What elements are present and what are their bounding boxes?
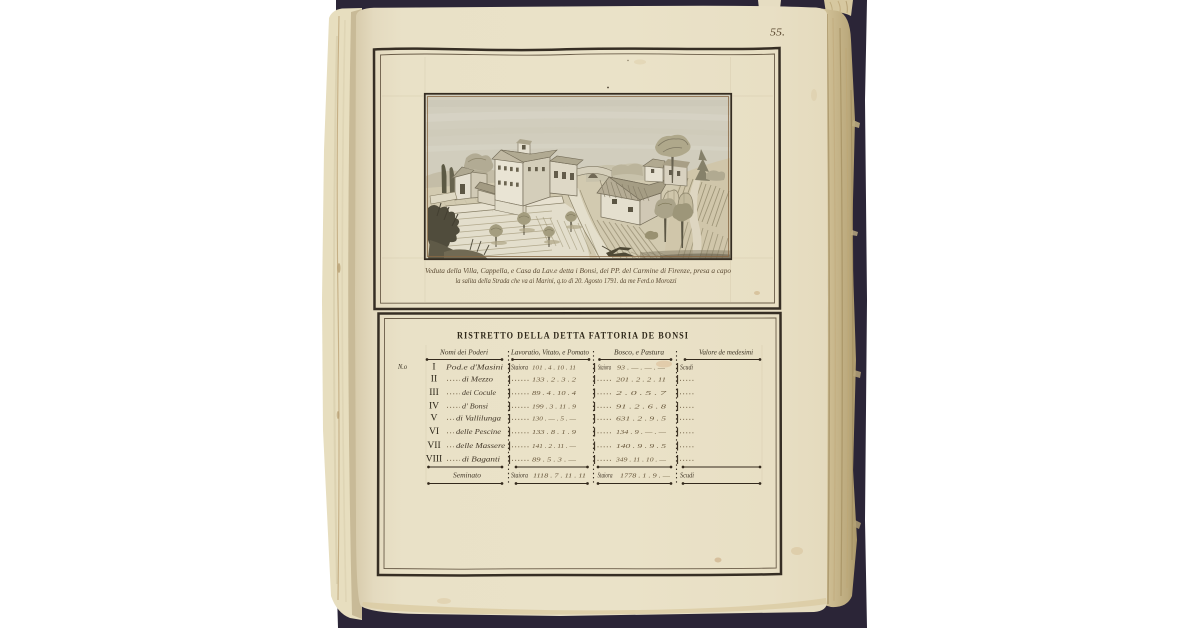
svg-text:VIII: VIII — [426, 454, 443, 465]
svg-text:141 . 2 . 11 . —: 141 . 2 . 11 . — — [532, 443, 577, 450]
svg-text:II: II — [431, 374, 437, 385]
svg-text:Nomi dei Poderi: Nomi dei Poderi — [439, 349, 488, 357]
svg-text:VI: VI — [429, 426, 439, 437]
svg-text:dei Cocule: dei Cocule — [462, 389, 497, 397]
svg-text:I: I — [432, 362, 435, 373]
svg-text:55.: 55. — [770, 27, 785, 39]
svg-text:Staiora: Staiora — [511, 364, 528, 372]
svg-text:delle Pescine: delle Pescine — [456, 428, 502, 436]
svg-text:di Vallilunga: di Vallilunga — [456, 415, 501, 423]
svg-text:Pod.e d'Masini: Pod.e d'Masini — [445, 363, 503, 372]
svg-text:130 . — . 5 . —: 130 . — . 5 . — — [532, 416, 577, 423]
svg-text:Scudi: Scudi — [680, 364, 693, 372]
svg-text:N.o: N.o — [397, 362, 407, 371]
svg-text:93 . — . — . —: 93 . — . — . — — [617, 365, 666, 372]
svg-text:di Baganti: di Baganti — [462, 456, 500, 464]
svg-text:Scudi: Scudi — [680, 472, 694, 480]
svg-text:RISTRETTO DELLA DETTA FATTO: RISTRETTO DELLA DETTA FATTORIA DE BONSI — [457, 332, 689, 342]
svg-text:III: III — [429, 387, 439, 398]
svg-text:89 . 4 . 10 . 4: 89 . 4 . 10 . 4 — [532, 390, 576, 397]
svg-text:V: V — [431, 413, 438, 424]
svg-text:91 . 2 . 6 . 8: 91 . 2 . 6 . 8 — [616, 404, 668, 411]
svg-text:133 . 2 . 3 . 2: 133 . 2 . 3 . 2 — [532, 377, 576, 384]
svg-text:Valore de medesimi: Valore de medesimi — [699, 349, 753, 357]
svg-text:Bosco, e Pastura: Bosco, e Pastura — [614, 349, 665, 357]
svg-text:Veduta della Villa, Cappella,: Veduta della Villa, Cappella, e Casa da … — [425, 268, 732, 275]
svg-text:Lavoratìo, Vitato, e Pomato: Lavoratìo, Vitato, e Pomato — [510, 349, 589, 357]
svg-text:89 . 5 . 3 . —: 89 . 5 . 3 . — — [532, 457, 577, 464]
svg-text:di Mezzo: di Mezzo — [462, 376, 493, 384]
svg-text:2 . 0 . 5 . 7: 2 . 0 . 5 . 7 — [616, 390, 668, 397]
svg-text:la salita della Strada che va: la salita della Strada che va ai Marini,… — [456, 278, 677, 285]
svg-text:IV: IV — [429, 401, 439, 412]
svg-text:199 . 3 . 11 . 9: 199 . 3 . 11 . 9 — [532, 404, 576, 411]
svg-text:134 . 9 . — . —: 134 . 9 . — . — — [616, 429, 667, 436]
svg-text:631 . 2 . 9 . 5: 631 . 2 . 9 . 5 — [616, 416, 666, 423]
svg-text:Staiora: Staiora — [511, 472, 528, 480]
svg-text:140 . 9 . 9 . 5: 140 . 9 . 9 . 5 — [616, 443, 666, 450]
svg-text:Staiora: Staiora — [598, 472, 613, 480]
svg-text:201 . 2 . 2 . 11: 201 . 2 . 2 . 11 — [616, 377, 666, 384]
svg-text:delle Massere: delle Massere — [456, 442, 506, 450]
svg-text:VII: VII — [427, 440, 440, 451]
svg-text:133 . 8 . 1 . 9: 133 . 8 . 1 . 9 — [532, 429, 576, 436]
svg-text:349 . 11 . 10 . —: 349 . 11 . 10 . — — [615, 457, 667, 464]
svg-text:1778 . 1 . 9 . —: 1778 . 1 . 9 . — — [620, 473, 670, 480]
svg-text:d' Bonsi: d' Bonsi — [462, 403, 488, 411]
svg-text:Staiora: Staiora — [598, 364, 611, 372]
svg-text:1118 . 7 . 11 . 11: 1118 . 7 . 11 . 11 — [533, 473, 586, 480]
svg-text:Seminato: Seminato — [453, 471, 481, 480]
svg-text:101 . 4 . 10 . 11: 101 . 4 . 10 . 11 — [532, 365, 576, 372]
